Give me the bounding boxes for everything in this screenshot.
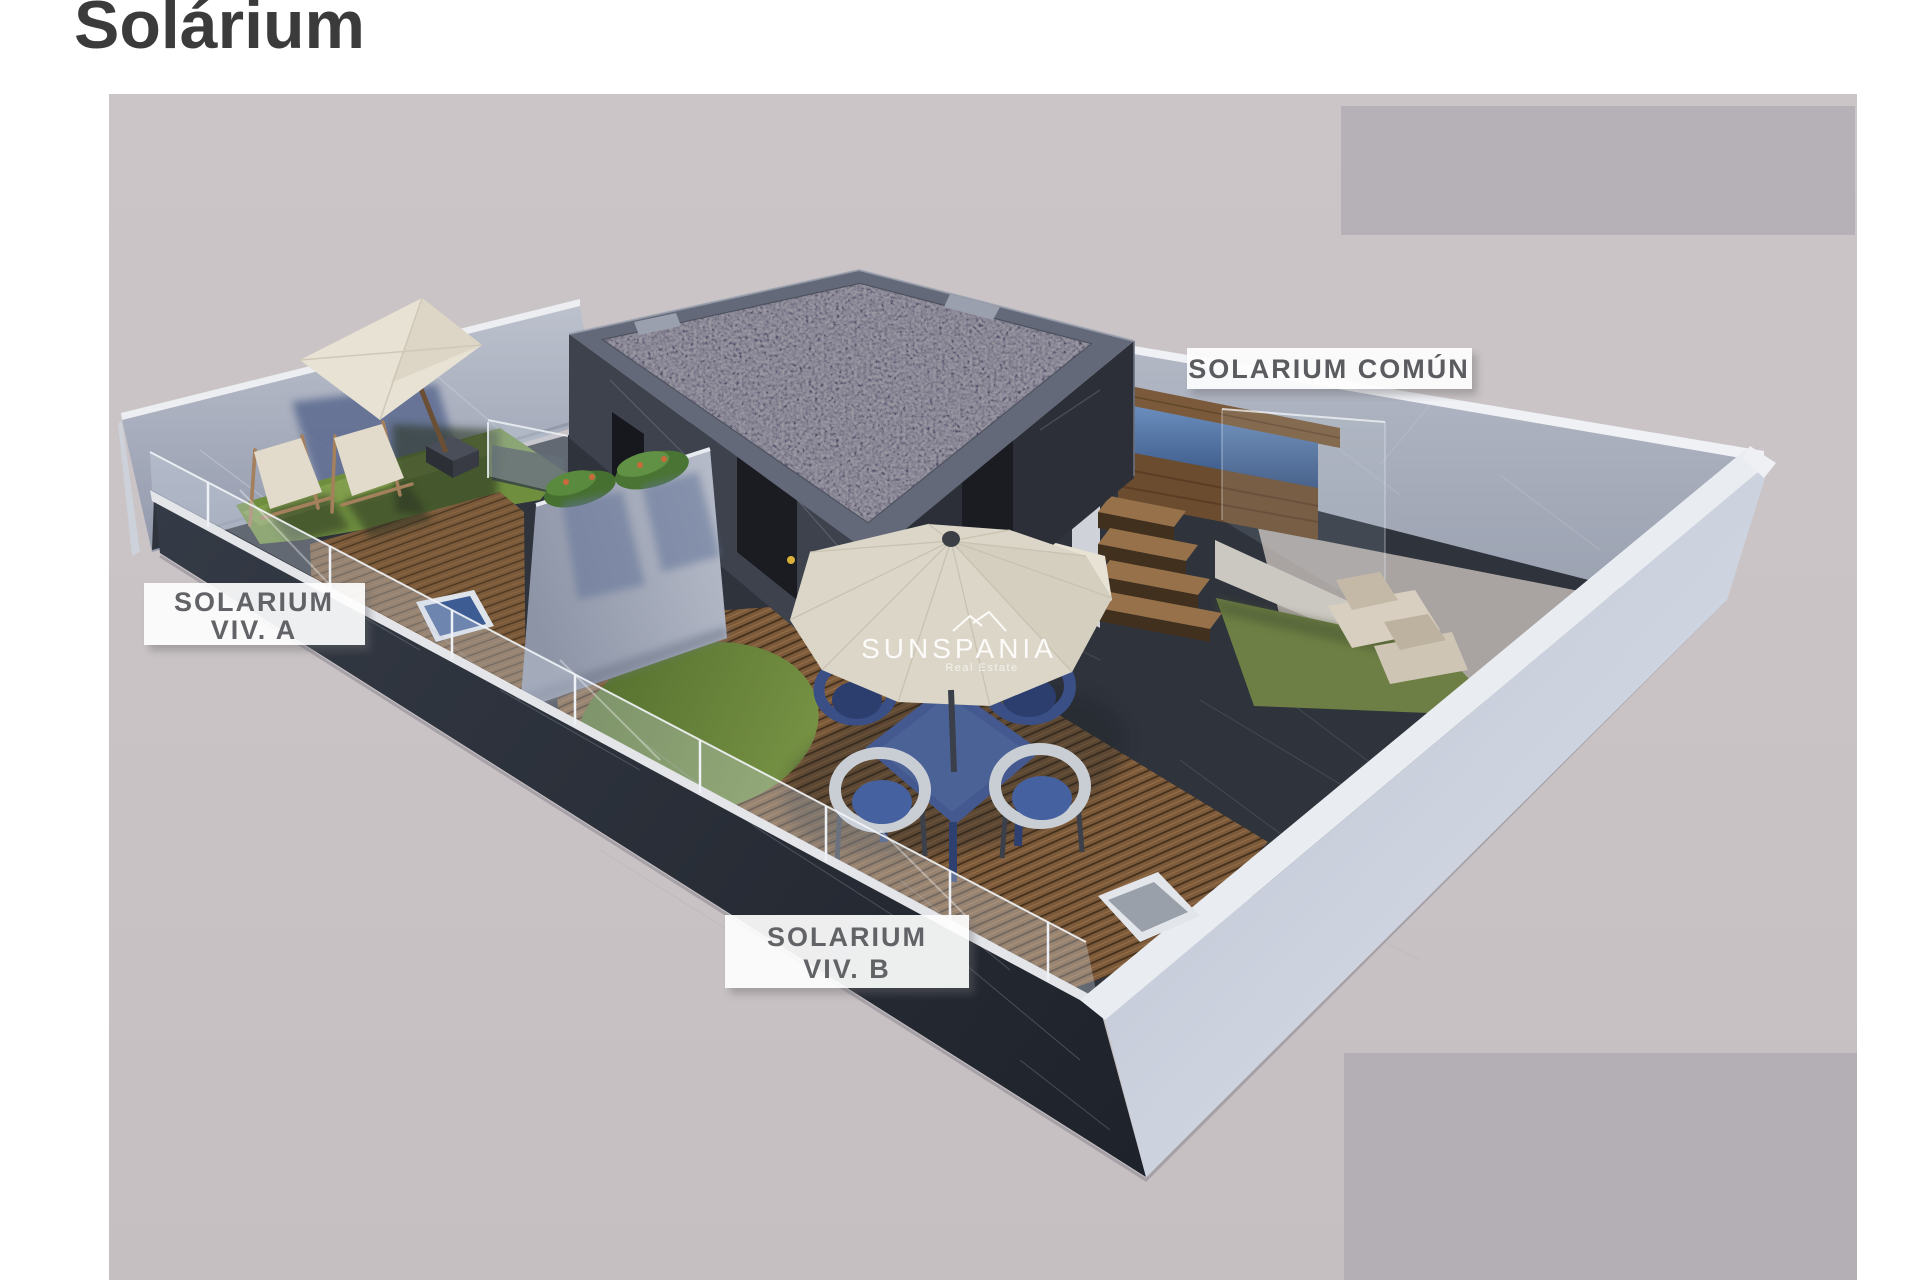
svg-text:SOLARIUM: SOLARIUM — [174, 587, 334, 617]
svg-text:VIV. B: VIV. B — [803, 954, 891, 984]
svg-text:SUNSPANIA: SUNSPANIA — [861, 633, 1057, 664]
svg-text:Real Estate: Real Estate — [945, 662, 1018, 674]
svg-text:SOLARIUM: SOLARIUM — [767, 922, 927, 952]
svg-text:SOLARIUM COMÚN: SOLARIUM COMÚN — [1188, 353, 1469, 384]
svg-text:Solárium: Solárium — [74, 0, 365, 63]
svg-text:VIV. A: VIV. A — [211, 615, 298, 645]
